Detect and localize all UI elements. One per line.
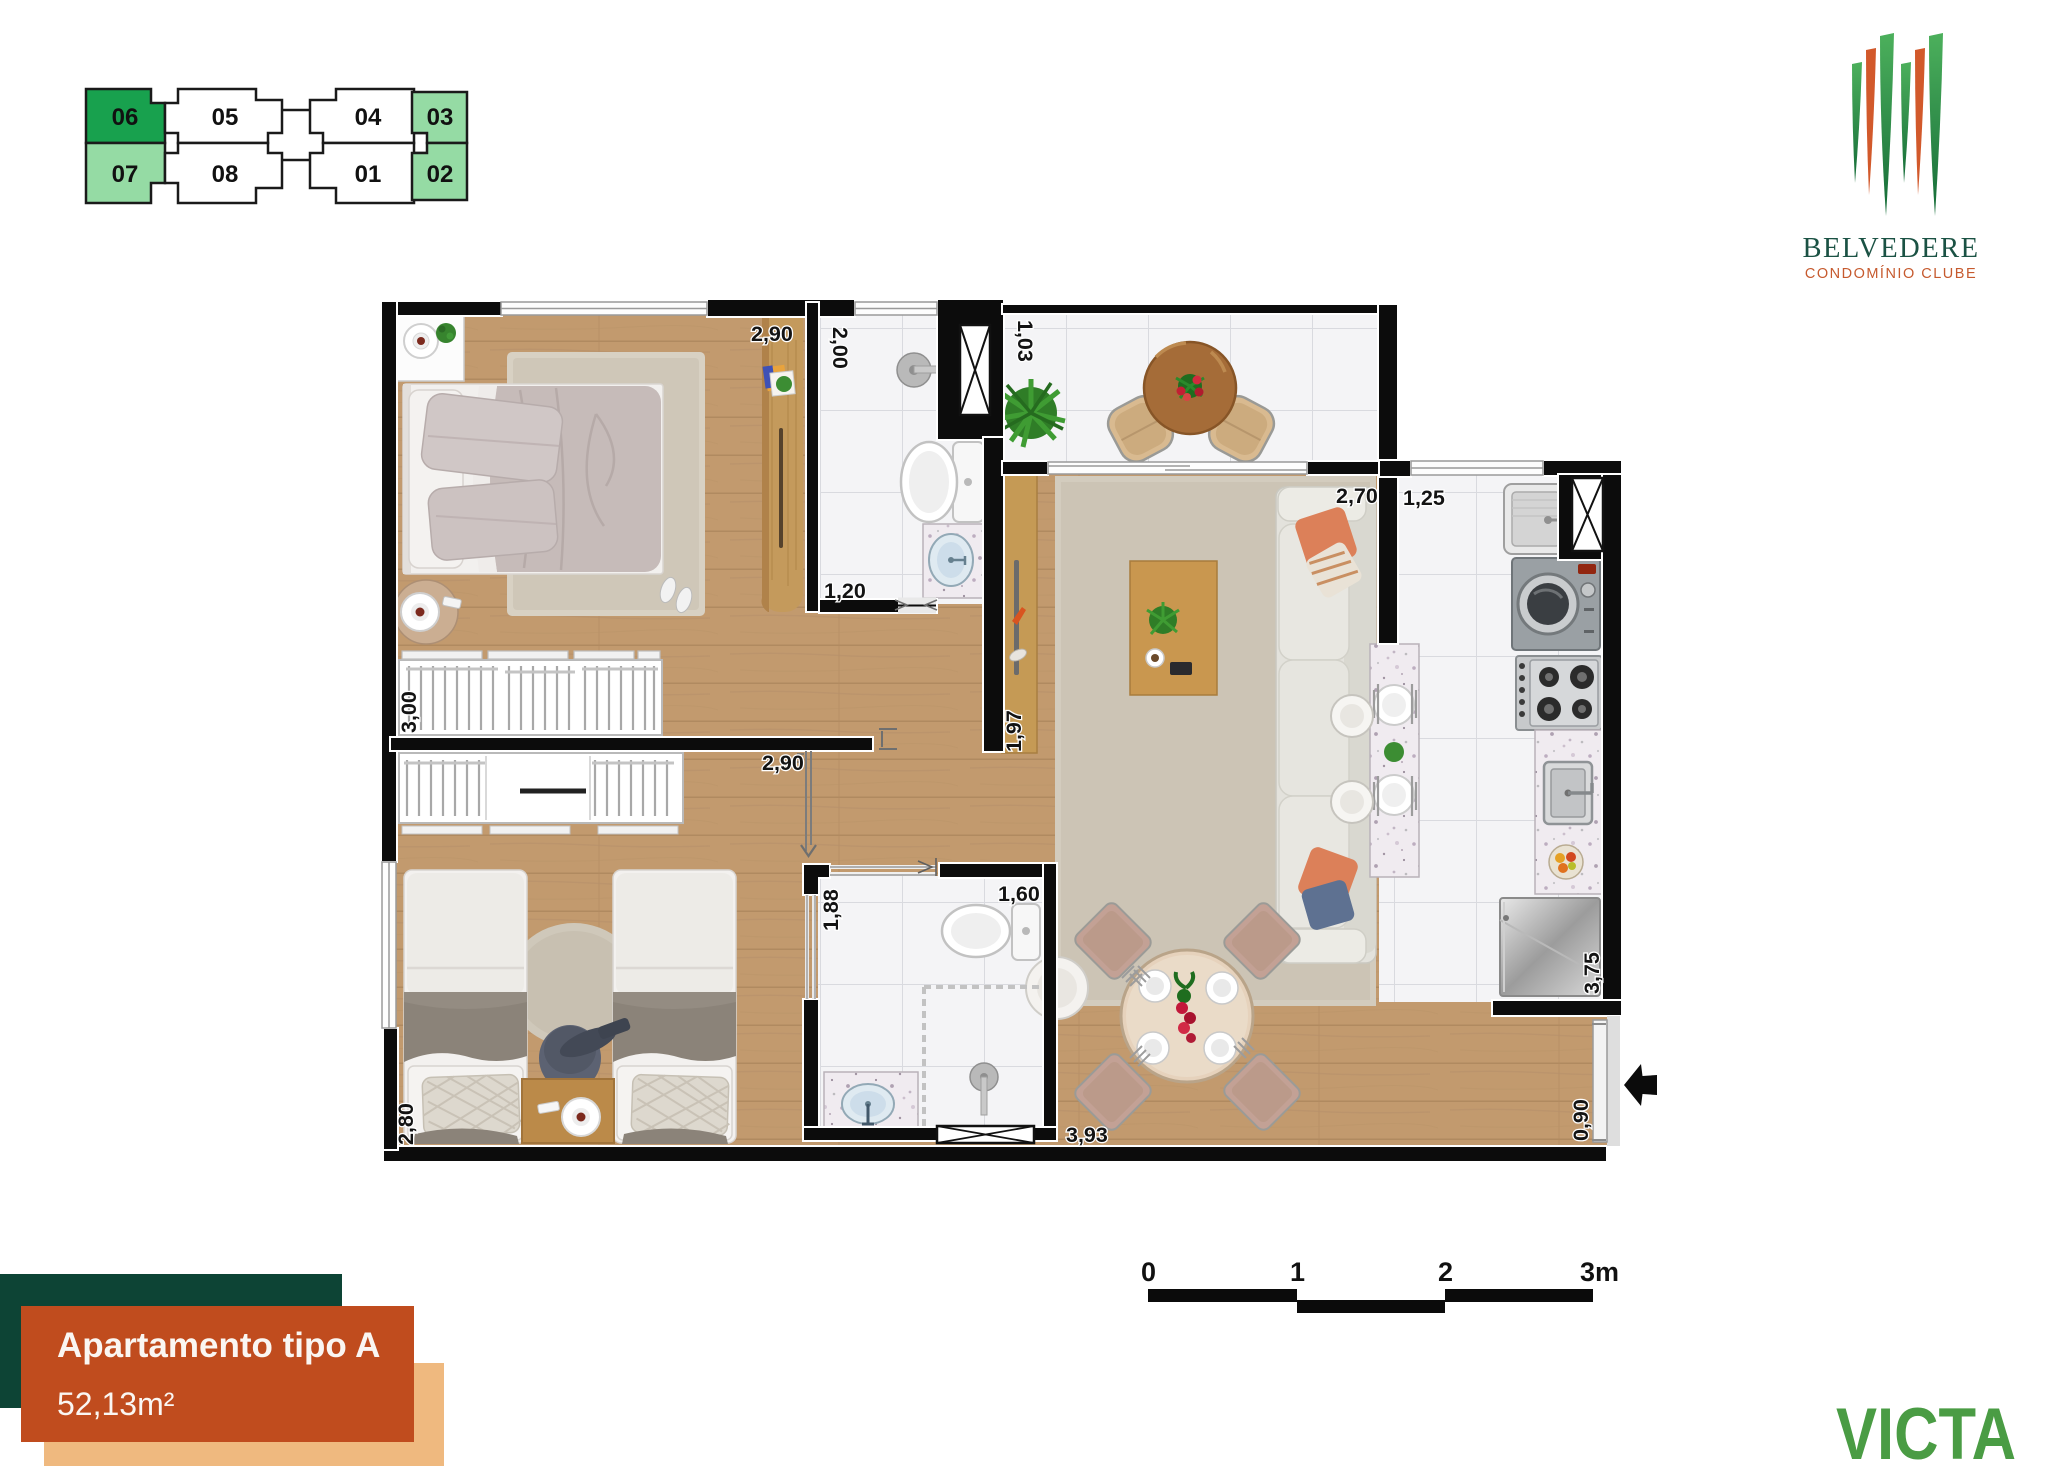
svg-text:1,88: 1,88 [819,889,843,931]
svg-text:1,20: 1,20 [824,579,866,603]
svg-text:2,70: 2,70 [1336,484,1378,508]
svg-text:06: 06 [112,104,139,131]
svg-text:BELVEDERE: BELVEDERE [1802,233,1979,264]
svg-text:0,90: 0,90 [1569,1099,1593,1141]
svg-text:VICTA: VICTA [1836,1394,2016,1475]
svg-text:02: 02 [427,161,454,188]
svg-text:3m: 3m [1580,1257,1619,1287]
svg-text:2,80: 2,80 [394,1103,418,1145]
svg-text:3,00: 3,00 [397,691,421,733]
svg-text:01: 01 [355,161,382,188]
svg-text:3,93: 3,93 [1066,1123,1108,1147]
svg-text:1,60: 1,60 [998,882,1040,906]
svg-text:1,03: 1,03 [1013,320,1037,362]
svg-text:05: 05 [212,104,239,131]
svg-text:0: 0 [1141,1257,1156,1287]
svg-text:1: 1 [1290,1257,1305,1287]
svg-text:03: 03 [427,104,454,131]
svg-text:07: 07 [112,161,139,188]
svg-text:2,90: 2,90 [762,751,804,775]
svg-text:1,25: 1,25 [1403,486,1445,510]
svg-text:CONDOMÍNIO CLUBE: CONDOMÍNIO CLUBE [1805,265,1977,282]
svg-text:Apartamento tipo A: Apartamento tipo A [57,1326,380,1365]
svg-text:3,75: 3,75 [1580,952,1604,994]
svg-text:04: 04 [355,104,382,131]
svg-text:2,90: 2,90 [751,322,793,346]
svg-text:52,13m²: 52,13m² [57,1386,175,1422]
svg-text:2: 2 [1438,1257,1453,1287]
svg-text:2,00: 2,00 [828,327,852,369]
svg-text:1,97: 1,97 [1002,710,1026,752]
svg-text:08: 08 [212,161,239,188]
